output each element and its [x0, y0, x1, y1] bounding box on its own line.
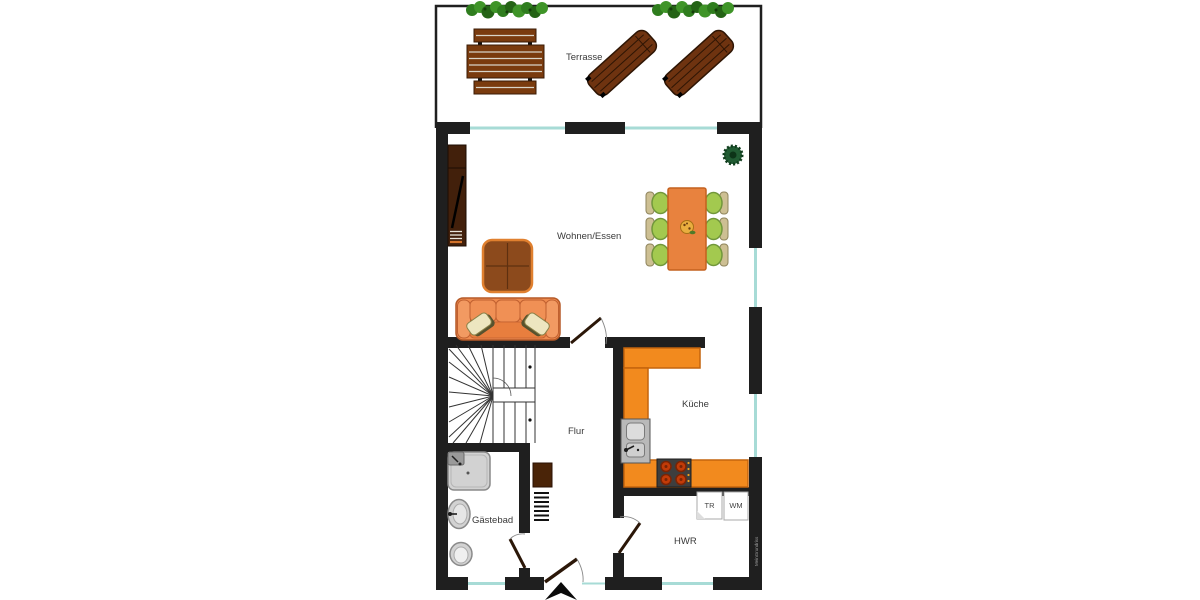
shower — [448, 452, 490, 490]
wardrobe — [533, 463, 552, 487]
room-label-kitchen: Küche — [682, 399, 709, 410]
room-label-living: Wohnen/Essen — [557, 231, 621, 242]
stove — [657, 459, 691, 487]
coffee-table — [483, 240, 532, 292]
hedge-plant-left — [466, 1, 548, 19]
dryer-label: TR — [705, 501, 716, 510]
dryer: TR — [697, 492, 722, 519]
hallway: Flur — [533, 426, 584, 520]
room-label-hall: Flur — [568, 426, 584, 437]
entrance-arrow-icon — [545, 582, 577, 600]
floorplan-page: Wohnen/Essen Terrasse — [0, 0, 1200, 600]
sofa — [456, 298, 560, 340]
room-label-hwr: HWR — [674, 536, 697, 547]
hedge-plant-right — [652, 1, 734, 19]
washer-label: WM — [729, 501, 742, 510]
door-bathroom — [510, 534, 525, 568]
washbasin — [448, 500, 470, 529]
sun-lounger-right — [661, 27, 736, 99]
floorplan-drawing: Wohnen/Essen Terrasse — [0, 0, 1200, 600]
tv-board — [448, 145, 466, 246]
potted-plant-icon — [724, 146, 742, 164]
utility-room: TR WM HWR MeinGrundriss — [674, 492, 759, 566]
kitchen-sink — [621, 419, 650, 463]
door-living — [571, 318, 606, 344]
shower-head-icon — [448, 452, 464, 465]
kitchen: Küche — [621, 348, 748, 487]
door-hwr — [619, 517, 640, 553]
room-label-bathroom: Gästebad — [472, 515, 513, 526]
door-entrance — [545, 559, 583, 582]
room-label-terrace: Terrasse — [566, 52, 602, 63]
bathroom: Gästebad — [448, 452, 513, 566]
washing-machine: WM — [724, 492, 748, 520]
picnic-table — [467, 29, 544, 94]
terrace — [436, 1, 761, 128]
watermark-text: MeinGrundriss — [754, 536, 759, 566]
radiator — [534, 493, 549, 520]
toilet — [450, 543, 472, 566]
staircase — [449, 345, 535, 443]
living-room: Wohnen/Essen — [448, 145, 742, 340]
